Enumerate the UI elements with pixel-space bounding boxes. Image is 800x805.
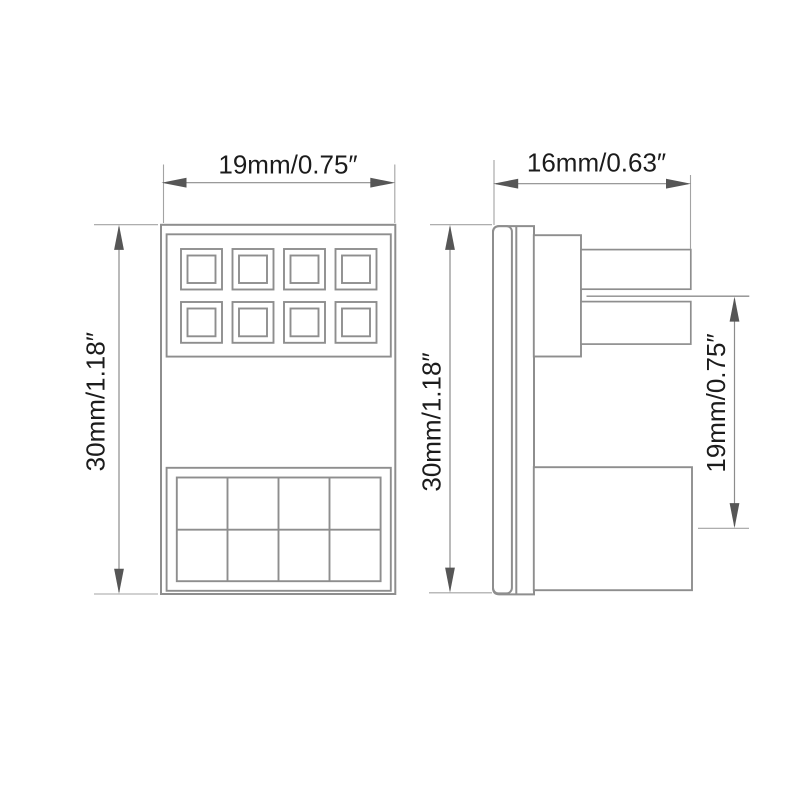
svg-text:30mm/1.18″: 30mm/1.18″ (80, 332, 110, 471)
svg-text:16mm/0.63″: 16mm/0.63″ (527, 148, 666, 178)
svg-text:19mm/0.75″: 19mm/0.75″ (218, 150, 357, 180)
svg-text:19mm/0.75″: 19mm/0.75″ (701, 333, 731, 472)
svg-text:30mm/1.18″: 30mm/1.18″ (416, 352, 446, 491)
